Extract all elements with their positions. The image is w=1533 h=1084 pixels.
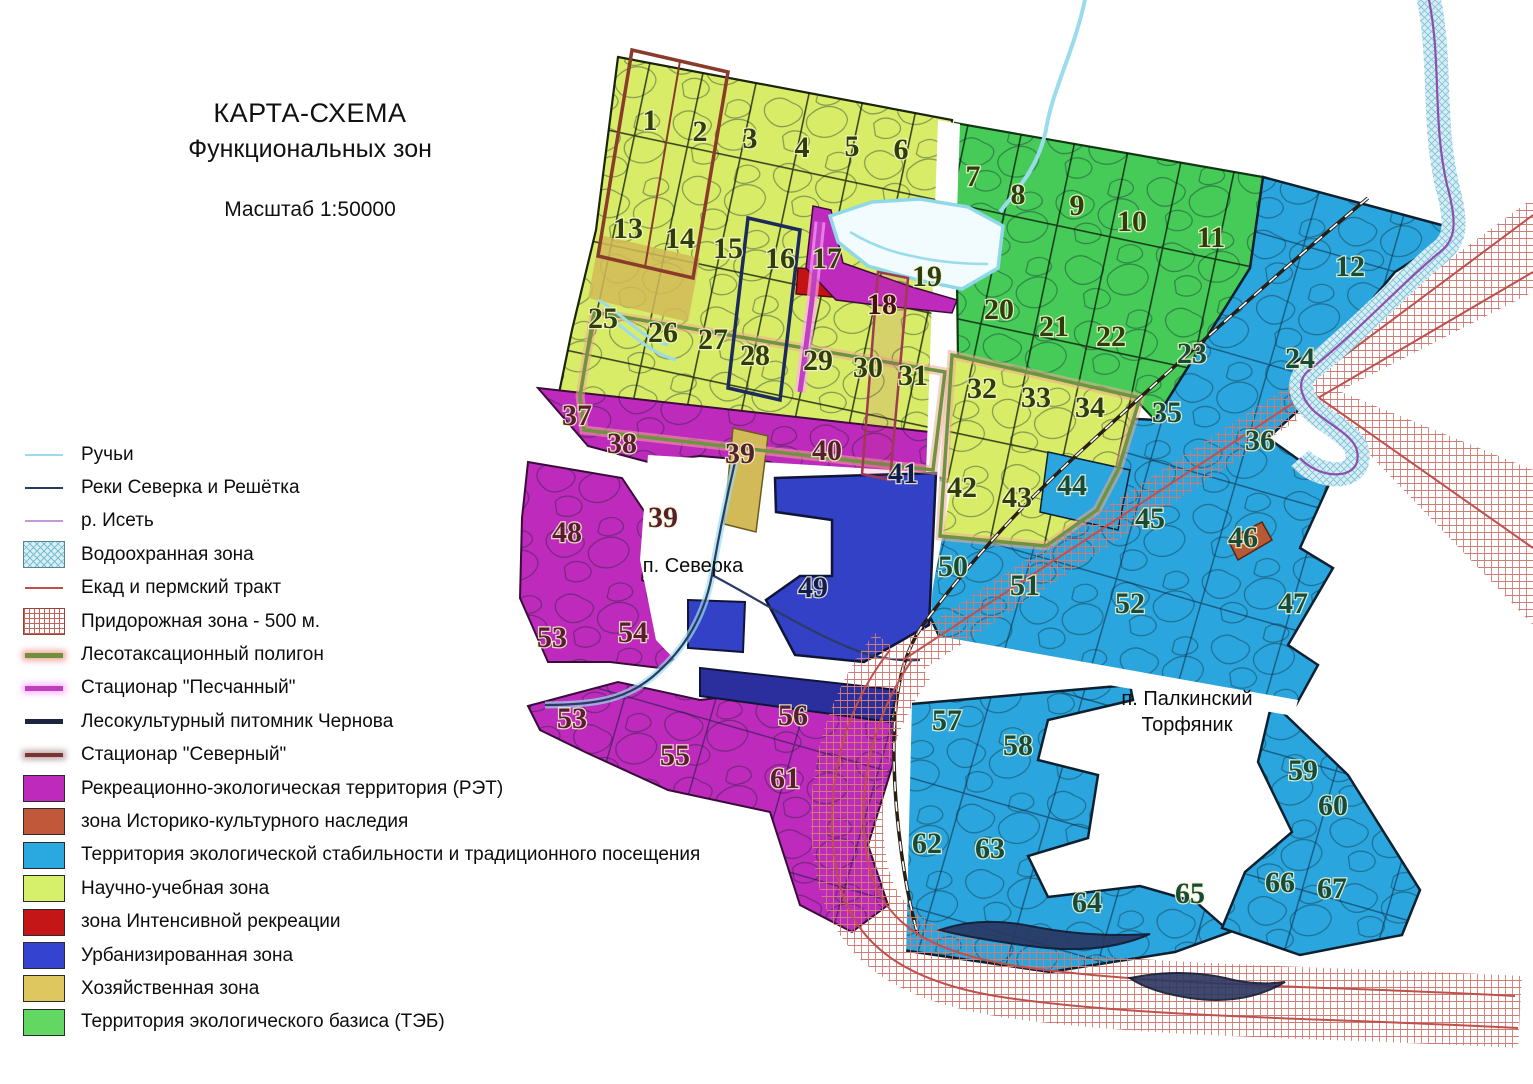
eco-stability-southeast-wing (1222, 702, 1420, 955)
legend-item: Реки Северка и Решётка (20, 471, 700, 504)
eco-stability-swatch-icon (23, 842, 65, 869)
zone-label-8: 8 (1011, 178, 1026, 211)
legend-item: Территория экологического базиса (ТЭБ) (20, 1006, 700, 1039)
urban-zone-swatch-icon (23, 942, 65, 969)
iset-line-icon (25, 520, 63, 522)
zone-label-36: 36 (1245, 424, 1275, 457)
zone-label-41: 41 (888, 457, 918, 490)
stationar-severny-line-icon (25, 753, 63, 757)
stream-line-icon (25, 454, 63, 456)
legend-item: Рекреационно-экологическая территория (Р… (20, 772, 700, 805)
zone-label-10: 10 (1117, 205, 1147, 238)
intensive-recreation-swatch-icon (23, 909, 65, 936)
zone-label-2: 2 (693, 115, 708, 148)
zone-label-40: 40 (812, 434, 842, 467)
zone-label-67: 67 (1317, 872, 1347, 905)
map-scale: Масштаб 1:50000 (130, 198, 490, 222)
zone-label-39: 39 (725, 437, 755, 470)
zone-label-63: 63 (975, 832, 1005, 865)
zone-label-66: 66 (1265, 866, 1295, 899)
legend-item: Водоохранная зона (20, 538, 700, 571)
zone-label-50: 50 (938, 550, 968, 583)
road-line-icon (25, 587, 63, 589)
legend-item-label: Водоохранная зона (81, 544, 254, 566)
zone-label-3: 3 (743, 122, 758, 155)
settlement-label-palkinsky-2: Торфяник (1142, 714, 1233, 736)
legend-item-label: р. Исеть (81, 510, 154, 532)
roadside-zone-swatch-icon (23, 608, 65, 635)
science-zone-swatch-icon (23, 875, 65, 902)
zone-label-45: 45 (1135, 502, 1165, 535)
zone-label-58: 58 (1003, 729, 1033, 762)
economic-zone-swatch-icon (23, 975, 65, 1002)
legend-item: Лесокультурный питомник Чернова (20, 705, 700, 738)
map-page: 1234567891011121314151617181920212223242… (0, 0, 1533, 1084)
zone-label-65: 65 (1175, 877, 1205, 910)
zone-label-35: 35 (1152, 396, 1182, 429)
legend-item-label: Стационар "Песчанный" (81, 677, 295, 699)
legend-item: Ручьи (20, 438, 700, 471)
legend-item-label: Екад и пермский тракт (81, 577, 281, 599)
zone-label-12: 12 (1335, 250, 1365, 283)
zone-label-16: 16 (765, 242, 795, 275)
legend-item: Урбанизированная зона (20, 939, 700, 972)
legend-item-label: Придорожная зона - 500 м. (81, 611, 320, 633)
river-line-icon (25, 487, 63, 489)
zone-label-56: 56 (778, 699, 808, 732)
zone-label-64: 64 (1072, 886, 1102, 919)
zone-label-46: 46 (1228, 521, 1258, 554)
forest-taxation-line-icon (25, 653, 63, 658)
zone-label-42: 42 (947, 471, 977, 504)
legend-item-label: зона Историко-культурного наследия (81, 811, 408, 833)
legend-item: Хозяйственная зона (20, 972, 700, 1005)
legend-item-label: Лесокультурный питомник Чернова (81, 711, 393, 733)
legend-item-label: Научно-учебная зона (81, 878, 269, 900)
zone-label-6: 6 (894, 133, 909, 166)
legend-item-label: Территория экологической стабильности и … (81, 844, 700, 866)
zone-label-37: 37 (562, 399, 592, 432)
legend-item-label: Рекреационно-экологическая территория (Р… (81, 778, 503, 800)
stationar-peschanny-line-icon (25, 686, 63, 691)
legend-item: Научно-учебная зона (20, 872, 700, 905)
zone-label-33: 33 (1021, 381, 1051, 414)
zone-label-30: 30 (853, 351, 883, 384)
zone-label-57: 57 (932, 704, 962, 737)
zone-label-52: 52 (1115, 587, 1145, 620)
legend-item: Территория экологической стабильности и … (20, 839, 700, 872)
zone-label-51: 51 (1010, 569, 1040, 602)
zone-label-17: 17 (812, 242, 842, 275)
zone-label-47: 47 (1278, 587, 1308, 620)
zone-label-60: 60 (1318, 789, 1348, 822)
heritage-swatch-icon (23, 808, 65, 835)
map-title-line2: Функциональных зон (130, 135, 490, 164)
zone-label-43: 43 (1002, 481, 1032, 514)
legend-item-label: Хозяйственная зона (81, 978, 259, 1000)
ret-swatch-icon (23, 775, 65, 802)
zone-label-26: 26 (648, 316, 678, 349)
zone-label-1: 1 (643, 104, 658, 137)
legend-item: Придорожная зона - 500 м. (20, 605, 700, 638)
map-title-line1: КАРТА-СХЕМА (130, 98, 490, 129)
zone-label-9: 9 (1070, 189, 1085, 222)
legend-item-label: Ручьи (81, 444, 134, 466)
zone-label-49: 49 (798, 571, 828, 604)
legend-item: Лесотаксационный полигон (20, 638, 700, 671)
chernov-nursery-line-icon (25, 719, 63, 724)
zone-label-27: 27 (698, 323, 728, 356)
zone-label-59: 59 (1288, 754, 1318, 787)
settlement-label-palkinsky-1: п. Палкинский (1121, 688, 1252, 710)
legend-item-label: Стационар "Северный" (81, 744, 286, 766)
legend-item: Стационар "Песчанный" (20, 672, 700, 705)
legend-item: Стационар "Северный" (20, 739, 700, 772)
legend-item: Екад и пермский тракт (20, 572, 700, 605)
zone-label-62: 62 (912, 827, 942, 860)
zone-label-28: 28 (740, 339, 770, 372)
zone-label-21: 21 (1039, 310, 1069, 343)
zone-label-24: 24 (1285, 342, 1315, 375)
legend-item-label: Реки Северка и Решётка (81, 477, 300, 499)
zone-label-61: 61 (770, 762, 800, 795)
zone-label-11: 11 (1197, 221, 1225, 254)
legend-item-label: Территория экологического базиса (ТЭБ) (81, 1011, 445, 1033)
zone-label-44: 44 (1057, 469, 1087, 502)
water-protection-swatch-icon (23, 541, 65, 568)
zone-label-25: 25 (588, 302, 618, 335)
zone-label-4: 4 (795, 131, 810, 164)
zone-label-29: 29 (803, 344, 833, 377)
legend-item-label: Лесотаксационный полигон (81, 644, 324, 666)
zone-label-19: 19 (912, 260, 942, 293)
zone-label-13: 13 (613, 212, 643, 245)
zone-label-34: 34 (1075, 391, 1105, 424)
legend: РучьиРеки Северка и Решёткар. ИсетьВодоо… (20, 438, 700, 1039)
map-title-block: КАРТА-СХЕМА Функциональных зон Масштаб 1… (130, 98, 490, 222)
zone-label-31: 31 (898, 359, 928, 392)
zone-label-32: 32 (967, 372, 997, 405)
zone-label-23: 23 (1177, 337, 1207, 370)
teb-swatch-icon (23, 1009, 65, 1036)
zone-label-15: 15 (713, 232, 743, 265)
zone-label-20: 20 (984, 293, 1014, 326)
zone-label-14: 14 (665, 222, 695, 255)
zone-label-5: 5 (845, 130, 860, 163)
legend-item-label: Урбанизированная зона (81, 945, 293, 967)
legend-item-label: зона Интенсивной рекреации (81, 911, 341, 933)
zone-label-22: 22 (1096, 320, 1126, 353)
legend-item: р. Исеть (20, 505, 700, 538)
legend-item: зона Интенсивной рекреации (20, 905, 700, 938)
zone-label-7: 7 (966, 160, 981, 193)
legend-item: зона Историко-культурного наследия (20, 805, 700, 838)
zone-label-18: 18 (867, 288, 897, 321)
